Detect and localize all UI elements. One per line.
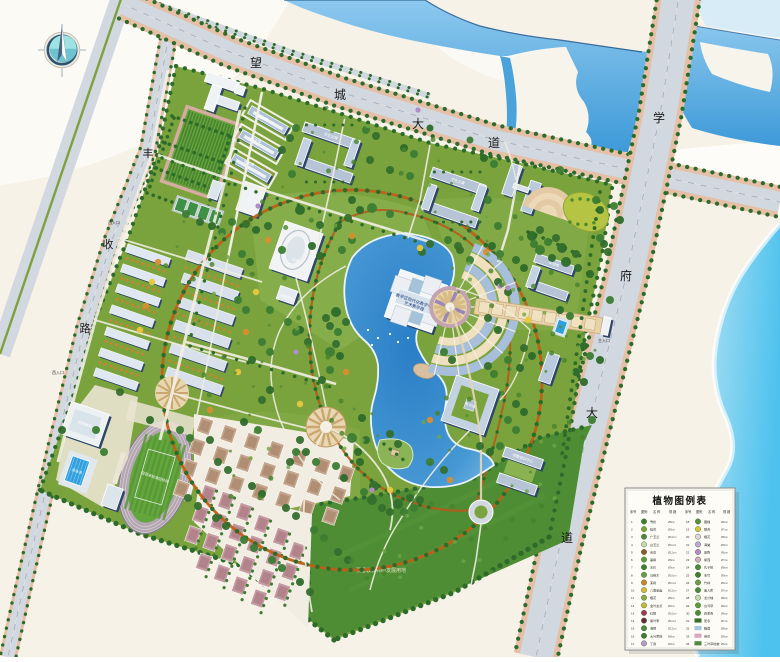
svg-text:银杏: 银杏 (704, 527, 710, 532)
svg-text:四季青: 四季青 (704, 610, 713, 615)
svg-text:睡莲: 睡莲 (704, 626, 710, 631)
svg-text:13: 13 (631, 611, 635, 615)
svg-text:Ø12cm: Ø12cm (668, 551, 676, 555)
svg-text:马褂木: 马褂木 (650, 572, 659, 577)
svg-text:Ø10cm: Ø10cm (668, 573, 676, 577)
svg-text:三叶草地被: 三叶草地被 (704, 641, 719, 646)
svg-text:Ø7cm: Ø7cm (721, 528, 728, 532)
svg-text:Ø12cm: Ø12cm (668, 627, 676, 631)
svg-text:22: 22 (686, 551, 690, 555)
svg-text:樱花: 樱花 (650, 595, 656, 600)
svg-text:美人蕉: 美人蕉 (704, 588, 713, 593)
svg-text:Ø8cm: Ø8cm (668, 558, 675, 562)
svg-text:12: 12 (631, 604, 635, 608)
svg-text:国槐: 国槐 (704, 519, 710, 524)
svg-text:Ø8cm: Ø8cm (721, 596, 728, 600)
svg-text:Ø7cm: Ø7cm (721, 619, 728, 623)
svg-text:Ø9cm: Ø9cm (668, 528, 675, 532)
svg-text:Ø9cm: Ø9cm (721, 604, 728, 608)
svg-text:20: 20 (686, 535, 690, 539)
svg-text:府: 府 (620, 268, 632, 283)
svg-text:规 格: 规 格 (723, 509, 731, 514)
svg-text:广玉兰: 广玉兰 (650, 534, 659, 539)
svg-text:主入口: 主入口 (598, 337, 610, 343)
svg-text:麦冬: 麦冬 (704, 618, 710, 623)
svg-text:11: 11 (631, 596, 634, 600)
svg-text:Ø9cm: Ø9cm (721, 634, 728, 638)
svg-text:17: 17 (631, 642, 635, 646)
svg-text:植物图例表: 植物图例表 (651, 495, 707, 507)
svg-text:30: 30 (686, 611, 690, 615)
svg-text:路: 路 (80, 322, 91, 335)
svg-text:Ø8cm: Ø8cm (668, 596, 675, 600)
svg-text:Ø7cm: Ø7cm (721, 589, 728, 593)
svg-text:图例: 图例 (641, 509, 647, 514)
svg-text:金叶女贞: 金叶女贞 (650, 603, 662, 608)
svg-text:毛竹: 毛竹 (704, 572, 710, 577)
svg-text:合欢: 合欢 (650, 550, 656, 555)
svg-text:白玉兰: 白玉兰 (650, 542, 659, 547)
svg-text:18: 18 (686, 520, 690, 524)
svg-text:桂花: 桂花 (650, 527, 656, 532)
svg-text:21: 21 (686, 543, 690, 547)
svg-text:Ø6cm: Ø6cm (721, 551, 728, 555)
svg-text:23: 23 (686, 558, 690, 562)
svg-text:收: 收 (103, 237, 114, 251)
svg-text:Ø12cm: Ø12cm (668, 589, 676, 593)
svg-text:望: 望 (250, 56, 262, 70)
svg-text:丁香: 丁香 (650, 641, 656, 646)
svg-text:Ø6cm: Ø6cm (721, 642, 728, 646)
svg-text:道: 道 (561, 531, 573, 545)
svg-text:紫叶李: 紫叶李 (650, 618, 659, 623)
svg-text:图例: 图例 (696, 509, 702, 514)
svg-text:25: 25 (686, 573, 690, 577)
svg-text:Ø9cm: Ø9cm (668, 604, 675, 608)
svg-text:紫荆: 紫荆 (704, 550, 710, 555)
svg-text:序号: 序号 (685, 509, 691, 514)
svg-text:红枫: 红枫 (650, 610, 656, 615)
svg-text:16: 16 (631, 634, 635, 638)
svg-text:Ø11cm: Ø11cm (668, 543, 676, 547)
svg-text:道: 道 (488, 136, 500, 150)
svg-text:台湾草: 台湾草 (704, 603, 713, 608)
svg-text:水杉: 水杉 (650, 565, 656, 570)
svg-text:Ø6cm: Ø6cm (721, 581, 728, 585)
svg-text:Ø9cm: Ø9cm (721, 543, 728, 547)
svg-text:Ø9cm: Ø9cm (668, 566, 675, 570)
svg-text:Ø7cm: Ø7cm (721, 558, 728, 562)
svg-text:西入口: 西入口 (108, 220, 120, 225)
svg-text:Ø8cm: Ø8cm (721, 535, 728, 539)
svg-text:垂柳: 垂柳 (650, 557, 656, 562)
svg-text:海桐: 海桐 (650, 626, 656, 631)
svg-text:Ø8cm: Ø8cm (721, 627, 728, 631)
svg-text:八角金盘: 八角金盘 (650, 588, 662, 593)
svg-text:Ø6cm: Ø6cm (721, 520, 728, 524)
svg-text:樱花: 樱花 (704, 534, 710, 539)
svg-text:31: 31 (686, 619, 690, 623)
svg-text:29: 29 (686, 604, 690, 608)
svg-text:大: 大 (412, 117, 424, 131)
svg-text:栾树: 栾树 (650, 580, 656, 585)
svg-text:雪松: 雪松 (650, 519, 656, 524)
svg-text:名 称: 名 称 (653, 509, 661, 514)
svg-text:荷花: 荷花 (704, 633, 710, 638)
svg-text:26: 26 (686, 581, 690, 585)
svg-text:32: 32 (686, 627, 690, 631)
svg-text:Ø8cm: Ø8cm (668, 520, 675, 524)
svg-text:10: 10 (631, 589, 635, 593)
svg-text:海棠: 海棠 (704, 542, 710, 547)
svg-text:28: 28 (686, 596, 690, 600)
svg-text:大叶黄杨: 大叶黄杨 (650, 633, 662, 638)
svg-text:Ø11cm: Ø11cm (668, 581, 676, 585)
svg-text:14: 14 (631, 619, 635, 623)
svg-text:Ø9cm: Ø9cm (721, 573, 728, 577)
svg-text:竹林: 竹林 (704, 580, 710, 585)
svg-text:Ø10cm: Ø10cm (668, 611, 676, 615)
svg-text:Ø8cm: Ø8cm (721, 566, 728, 570)
svg-text:33: 33 (686, 634, 690, 638)
svg-text:Ø10cm: Ø10cm (668, 535, 676, 539)
svg-text:序号: 序号 (630, 509, 636, 514)
svg-text:34: 34 (686, 642, 690, 646)
svg-text:西入口: 西入口 (52, 370, 64, 375)
svg-text:Ø6cm: Ø6cm (721, 611, 728, 615)
svg-text:紫薇: 紫薇 (704, 557, 710, 562)
svg-text:15: 15 (631, 627, 635, 631)
svg-text:27: 27 (686, 589, 690, 593)
svg-text:Ø11cm: Ø11cm (668, 619, 676, 623)
svg-text:大: 大 (586, 406, 598, 420)
svg-text:24: 24 (686, 566, 690, 570)
svg-text:龙爪槐: 龙爪槐 (704, 595, 713, 600)
svg-text:Ø9cm: Ø9cm (668, 642, 675, 646)
svg-text:19: 19 (686, 528, 690, 532)
svg-text:城: 城 (334, 88, 346, 102)
svg-text:学: 学 (653, 110, 665, 125)
svg-text:丰: 丰 (143, 147, 154, 160)
svg-text:规 格: 规 格 (669, 509, 677, 514)
svg-text:Ø8cm: Ø8cm (668, 634, 675, 638)
svg-text:孔子树: 孔子树 (704, 565, 713, 570)
svg-text:名 称: 名 称 (708, 509, 716, 514)
